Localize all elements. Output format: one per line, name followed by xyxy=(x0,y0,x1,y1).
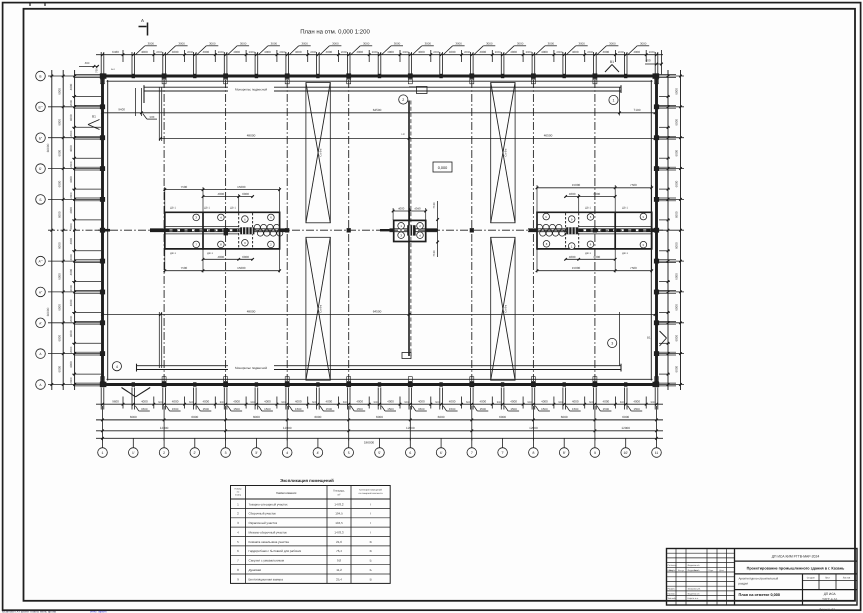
svg-text:4000: 4000 xyxy=(172,400,179,404)
svg-text:3000: 3000 xyxy=(640,42,647,46)
svg-text:Св-8м: Св-8м xyxy=(504,149,508,157)
svg-text:4000: 4000 xyxy=(449,400,456,404)
svg-text:А': А' xyxy=(39,321,42,325)
svg-text:6000: 6000 xyxy=(130,415,137,419)
svg-text:6000: 6000 xyxy=(57,365,61,372)
svg-text:по пожарной опасности: по пожарной опасности xyxy=(359,492,384,495)
svg-text:7500: 7500 xyxy=(181,266,188,270)
svg-text:500: 500 xyxy=(466,401,471,404)
svg-text:Наименование: Наименование xyxy=(276,491,297,495)
svg-text:4000: 4000 xyxy=(264,50,271,54)
svg-text:План на отметке 0,000: План на отметке 0,000 xyxy=(739,593,780,597)
svg-text:4000: 4000 xyxy=(69,361,73,368)
svg-text:7100: 7100 xyxy=(634,108,641,112)
svg-text:48000: 48000 xyxy=(247,310,256,314)
svg-text:Б'': Б'' xyxy=(39,136,43,140)
svg-text:Король е.а.: Король е.а. xyxy=(688,597,699,600)
svg-text:64500: 64500 xyxy=(373,108,382,112)
svg-text:Б''': Б''' xyxy=(39,105,43,109)
svg-text:2000: 2000 xyxy=(69,346,73,353)
svg-text:6000: 6000 xyxy=(499,415,506,419)
svg-text:12000: 12000 xyxy=(621,426,630,430)
svg-text:6000: 6000 xyxy=(57,149,61,156)
svg-text:4800: 4800 xyxy=(569,192,576,196)
svg-text:Бк1: Бк1 xyxy=(111,68,116,71)
svg-text:ДВ-1: ДВ-1 xyxy=(207,252,213,255)
svg-text:4800: 4800 xyxy=(217,192,224,196)
svg-text:ДВ-1: ДВ-1 xyxy=(170,207,176,210)
svg-text:ДВ-1: ДВ-1 xyxy=(585,252,591,255)
svg-text:4000: 4000 xyxy=(141,50,148,54)
svg-text:15000: 15000 xyxy=(572,183,581,187)
svg-text:186000: 186000 xyxy=(364,440,375,444)
svg-text:500: 500 xyxy=(528,401,533,404)
svg-text:Механо-сборочный участок: Механо-сборочный участок xyxy=(249,530,288,534)
svg-text:500: 500 xyxy=(374,401,379,404)
svg-text:4000: 4000 xyxy=(326,400,333,404)
svg-text:500: 500 xyxy=(435,401,440,404)
svg-text:1': 1' xyxy=(132,451,135,455)
svg-text:76,4: 76,4 xyxy=(336,549,342,553)
svg-text:3000: 3000 xyxy=(332,42,339,46)
svg-text:2000: 2000 xyxy=(187,51,193,54)
svg-text:3000: 3000 xyxy=(271,42,278,46)
svg-text:6: 6 xyxy=(409,451,411,455)
svg-text:4000: 4000 xyxy=(387,50,394,54)
svg-text:В: В xyxy=(39,75,41,79)
svg-text:1500: 1500 xyxy=(172,407,179,411)
svg-text:ДВ-1: ДВ-1 xyxy=(585,207,591,210)
svg-text:12000: 12000 xyxy=(283,426,292,430)
svg-text:6000: 6000 xyxy=(57,88,61,95)
svg-text:Стадия: Стадия xyxy=(807,576,816,579)
svg-text:раздел: раздел xyxy=(739,581,749,585)
svg-text:4040: 4040 xyxy=(414,206,421,210)
svg-text:Б': Б' xyxy=(39,167,42,171)
svg-text:2000: 2000 xyxy=(156,51,162,54)
svg-text:Св-8м: Св-8м xyxy=(319,305,323,313)
svg-text:30000: 30000 xyxy=(46,143,50,152)
svg-text:1500: 1500 xyxy=(480,407,487,411)
svg-text:500: 500 xyxy=(251,401,256,404)
svg-text:В: В xyxy=(370,577,372,581)
svg-text:6000: 6000 xyxy=(57,335,61,342)
svg-text:2000: 2000 xyxy=(556,51,562,54)
svg-text:1: 1 xyxy=(102,451,104,455)
svg-text:6000: 6000 xyxy=(242,192,249,196)
svg-text:1500: 1500 xyxy=(295,407,302,411)
svg-text:4000: 4000 xyxy=(356,400,363,404)
svg-text:4000: 4000 xyxy=(202,50,209,54)
svg-text:12000: 12000 xyxy=(160,426,169,430)
svg-text:4000: 4000 xyxy=(449,50,456,54)
svg-text:4000: 4000 xyxy=(418,400,425,404)
svg-text:2000: 2000 xyxy=(218,51,224,54)
svg-text:ДВ-1: ДВ-1 xyxy=(230,207,236,210)
svg-text:6000: 6000 xyxy=(674,242,678,249)
svg-text:1500: 1500 xyxy=(510,407,517,411)
svg-text:6000: 6000 xyxy=(594,255,601,259)
svg-text:4000: 4000 xyxy=(479,400,486,404)
svg-text:2000: 2000 xyxy=(433,51,439,54)
svg-text:500: 500 xyxy=(312,401,317,404)
svg-text:46500: 46500 xyxy=(544,134,553,138)
svg-text:7500: 7500 xyxy=(630,266,637,270)
svg-text:6000: 6000 xyxy=(674,335,678,342)
svg-text:Экспликация помещений: Экспликация помещений xyxy=(280,478,334,483)
svg-text:6000: 6000 xyxy=(674,365,678,372)
svg-text:2000: 2000 xyxy=(403,51,409,54)
svg-text:1500: 1500 xyxy=(572,407,579,411)
svg-text:3000: 3000 xyxy=(578,42,585,46)
svg-text:3000: 3000 xyxy=(240,42,247,46)
svg-text:1500: 1500 xyxy=(541,407,548,411)
svg-text:15000: 15000 xyxy=(237,266,246,270)
svg-text:Фадеева и/о: Фадеева и/о xyxy=(688,569,701,572)
svg-text:ДВ-1: ДВ-1 xyxy=(170,252,176,255)
svg-text:Кол.уч: Кол.уч xyxy=(678,569,684,572)
svg-text:Зав.каф.: Зав.каф. xyxy=(668,597,677,600)
svg-text:400: 400 xyxy=(645,59,650,63)
svg-text:11,2: 11,2 xyxy=(336,568,342,572)
svg-text:4000: 4000 xyxy=(572,50,579,54)
svg-text:4000: 4000 xyxy=(510,50,517,54)
svg-text:500: 500 xyxy=(220,401,225,404)
svg-text:Монорельс подвесной: Монорельс подвесной xyxy=(235,366,267,370)
svg-text:1: 1 xyxy=(613,99,615,103)
svg-text:Фадеева и/о: Фадеева и/о xyxy=(688,564,701,567)
svg-text:1478,2: 1478,2 xyxy=(334,502,344,506)
svg-text:1500: 1500 xyxy=(633,407,640,411)
svg-text:2000: 2000 xyxy=(587,51,593,54)
svg-text:В: В xyxy=(370,540,372,544)
svg-text:1478,3: 1478,3 xyxy=(334,530,344,534)
svg-text:Площадь,: Площадь, xyxy=(333,490,345,493)
svg-text:10': 10' xyxy=(623,451,628,455)
svg-text:ДВ-1: ДВ-1 xyxy=(622,252,628,255)
svg-text:6000: 6000 xyxy=(674,211,678,218)
svg-text:4000: 4000 xyxy=(510,400,517,404)
svg-text:750: 750 xyxy=(95,68,99,73)
svg-text:1500: 1500 xyxy=(418,407,425,411)
svg-text:7': 7' xyxy=(501,451,504,455)
svg-text:плану: плану xyxy=(235,494,242,497)
svg-text:2000: 2000 xyxy=(69,285,73,292)
svg-text:4800: 4800 xyxy=(217,255,224,259)
svg-text:7740: 7740 xyxy=(432,202,436,209)
svg-text:ДВ-1: ДВ-1 xyxy=(622,207,628,210)
svg-text:6000: 6000 xyxy=(674,304,678,311)
svg-text:4000: 4000 xyxy=(541,400,548,404)
svg-text:6000: 6000 xyxy=(674,180,678,187)
svg-text:4000: 4000 xyxy=(69,207,73,214)
svg-text:6000: 6000 xyxy=(191,415,198,419)
svg-text:3000: 3000 xyxy=(394,42,401,46)
svg-text:4000: 4000 xyxy=(418,50,425,54)
svg-text:2': 2' xyxy=(194,451,197,455)
svg-text:4000: 4000 xyxy=(633,400,640,404)
svg-text:3000: 3000 xyxy=(301,42,308,46)
svg-text:500: 500 xyxy=(404,401,409,404)
svg-text:9,8: 9,8 xyxy=(337,559,342,563)
svg-text:Подп.: Подп. xyxy=(708,569,714,572)
svg-text:Захарова у.В.: Захарова у.В. xyxy=(688,588,702,591)
svg-text:4000: 4000 xyxy=(572,400,579,404)
svg-text:4000: 4000 xyxy=(233,50,240,54)
svg-text:2ДГТ-6-16: 2ДГТ-6-16 xyxy=(822,598,837,602)
svg-text:Монорельс подвесной: Монорельс подвесной xyxy=(235,88,267,92)
svg-text:15000: 15000 xyxy=(237,185,246,189)
svg-text:ДВ-1: ДВ-1 xyxy=(204,207,210,210)
svg-text:12000: 12000 xyxy=(406,426,415,430)
svg-text:6000: 6000 xyxy=(376,415,383,419)
svg-text:400: 400 xyxy=(85,61,90,65)
svg-text:25,4: 25,4 xyxy=(336,577,342,581)
svg-text:4000: 4000 xyxy=(264,400,271,404)
svg-text:4000: 4000 xyxy=(398,206,405,210)
svg-text:4000: 4000 xyxy=(479,50,486,54)
svg-text:3000: 3000 xyxy=(209,42,216,46)
svg-text:6000: 6000 xyxy=(438,415,445,419)
svg-text:I: I xyxy=(370,512,371,516)
svg-text:4: 4 xyxy=(286,451,288,455)
svg-text:500: 500 xyxy=(558,401,563,404)
svg-text:140: 140 xyxy=(401,133,406,136)
svg-text:500: 500 xyxy=(150,115,155,119)
svg-text:6000: 6000 xyxy=(57,273,61,280)
svg-text:500: 500 xyxy=(189,401,194,404)
svg-text:6000: 6000 xyxy=(594,192,601,196)
svg-text:1500: 1500 xyxy=(326,407,333,411)
svg-text:5: 5 xyxy=(348,451,350,455)
svg-text:В1: В1 xyxy=(610,60,614,64)
svg-text:0,000: 0,000 xyxy=(438,166,448,170)
svg-text:2000: 2000 xyxy=(618,51,624,54)
svg-text:7740: 7740 xyxy=(432,250,436,257)
svg-text:6000: 6000 xyxy=(674,149,678,156)
svg-text:6000: 6000 xyxy=(57,304,61,311)
svg-text:4000: 4000 xyxy=(69,176,73,183)
svg-text:Провер.: Провер. xyxy=(668,592,676,595)
svg-text:6000: 6000 xyxy=(57,119,61,126)
svg-text:1500: 1500 xyxy=(449,407,456,411)
svg-text:500: 500 xyxy=(589,401,594,404)
svg-text:А''': А''' xyxy=(39,260,43,264)
svg-text:9400: 9400 xyxy=(118,107,125,111)
svg-text:2000: 2000 xyxy=(69,99,73,106)
svg-text:2: 2 xyxy=(402,98,404,102)
svg-text:А'': А'' xyxy=(39,291,43,295)
svg-text:2000: 2000 xyxy=(69,130,73,137)
svg-text:4000: 4000 xyxy=(295,400,302,404)
svg-text:2000: 2000 xyxy=(279,51,285,54)
svg-text:Консульт.: Консульт. xyxy=(668,569,677,572)
svg-text:Вентиляционная камера: Вентиляционная камера xyxy=(249,577,284,581)
svg-text:7500: 7500 xyxy=(630,183,637,187)
svg-text:Номер: Номер xyxy=(235,488,243,491)
svg-text:4800: 4800 xyxy=(569,255,576,259)
svg-text:2000: 2000 xyxy=(69,161,73,168)
svg-text:Проектирование промышленного з: Проектирование промышленного здания в г.… xyxy=(747,566,845,570)
svg-text:Токарно-слесарный участок: Токарно-слесарный участок xyxy=(249,502,289,506)
svg-text:9: 9 xyxy=(594,451,596,455)
svg-text:ДП ИСА: ДП ИСА xyxy=(824,592,837,596)
svg-text:4000: 4000 xyxy=(603,50,610,54)
svg-text:План на отм. 0,000 1:200: План на отм. 0,000 1:200 xyxy=(300,29,370,36)
svg-text:4000: 4000 xyxy=(172,50,179,54)
svg-text:Комната начальника участка: Комната начальника участка xyxy=(249,540,290,544)
svg-text:48000: 48000 xyxy=(247,134,256,138)
svg-text:4': 4' xyxy=(317,451,320,455)
svg-text:1500: 1500 xyxy=(387,407,394,411)
svg-text:4: 4 xyxy=(116,365,118,369)
svg-text:2000: 2000 xyxy=(69,254,73,261)
svg-text:1500: 1500 xyxy=(603,407,610,411)
svg-text:2000: 2000 xyxy=(69,192,73,199)
svg-text:В1: В1 xyxy=(647,336,651,340)
svg-text:4000: 4000 xyxy=(233,400,240,404)
svg-text:3': 3' xyxy=(255,451,258,455)
svg-text:3000: 3000 xyxy=(363,42,370,46)
svg-text:500: 500 xyxy=(651,401,656,404)
svg-text:500: 500 xyxy=(281,401,286,404)
svg-text:I: I xyxy=(370,502,371,506)
svg-text:ДП ИСА КИМ РГТВ-МАР-2024: ДП ИСА КИМ РГТВ-МАР-2024 xyxy=(772,555,820,559)
svg-text:Св-8м: Св-8м xyxy=(319,149,323,157)
svg-text:4000: 4000 xyxy=(295,50,302,54)
svg-text:4000: 4000 xyxy=(69,330,73,337)
svg-text:Б: Б xyxy=(370,559,372,563)
svg-text:2000: 2000 xyxy=(69,377,73,384)
svg-text:6000: 6000 xyxy=(57,180,61,187)
svg-text:В: В xyxy=(370,549,372,553)
svg-text:Санузел с умывальником: Санузел с умывальником xyxy=(249,559,285,563)
svg-text:30000: 30000 xyxy=(46,307,50,316)
svg-text:6000: 6000 xyxy=(674,88,678,95)
svg-text:1500: 1500 xyxy=(233,407,240,411)
svg-text:4000: 4000 xyxy=(202,400,209,404)
svg-text:3000: 3000 xyxy=(517,42,524,46)
svg-text:3000: 3000 xyxy=(148,42,155,46)
svg-text:м²: м² xyxy=(338,494,341,497)
svg-text:4000: 4000 xyxy=(69,145,73,152)
svg-text:194,5: 194,5 xyxy=(335,521,343,525)
svg-text:А: А xyxy=(141,18,144,23)
svg-text:I: I xyxy=(370,521,371,525)
svg-text:4000: 4000 xyxy=(69,238,73,245)
svg-text:1500: 1500 xyxy=(264,407,271,411)
svg-text:1500: 1500 xyxy=(203,407,210,411)
svg-text:Формат А1: Формат А1 xyxy=(819,607,835,611)
svg-text:3: 3 xyxy=(225,451,227,455)
svg-text:11: 11 xyxy=(655,451,659,455)
svg-text:15000: 15000 xyxy=(572,266,581,270)
svg-text:6000: 6000 xyxy=(242,255,249,259)
svg-text:3000: 3000 xyxy=(455,42,462,46)
svg-text:2000: 2000 xyxy=(464,51,470,54)
svg-text:4000: 4000 xyxy=(69,114,73,121)
svg-text:500: 500 xyxy=(620,401,625,404)
svg-text:Архитектурно-строительный: Архитектурно-строительный xyxy=(739,577,779,581)
svg-text:Согласов.: Согласов. xyxy=(668,564,678,567)
svg-text:2000: 2000 xyxy=(495,51,501,54)
svg-text:8': 8' xyxy=(563,451,566,455)
svg-text:Листов: Листов xyxy=(843,576,851,579)
svg-text:4000: 4000 xyxy=(69,83,73,90)
svg-text:4000: 4000 xyxy=(387,400,394,404)
svg-text:1500: 1500 xyxy=(356,407,363,411)
svg-text:2000: 2000 xyxy=(526,51,532,54)
svg-text:4000: 4000 xyxy=(356,50,363,54)
svg-text:3000: 3000 xyxy=(486,42,493,46)
svg-text:4000: 4000 xyxy=(326,50,333,54)
svg-text:3000: 3000 xyxy=(425,42,432,46)
svg-text:В1: В1 xyxy=(92,115,96,119)
svg-text:1500: 1500 xyxy=(141,407,148,411)
svg-text:Св-8м: Св-8м xyxy=(504,305,508,313)
svg-text:6000: 6000 xyxy=(314,415,321,419)
svg-text:3000: 3000 xyxy=(178,42,185,46)
svg-text:6480: 6480 xyxy=(112,50,119,54)
svg-text:2000: 2000 xyxy=(69,223,73,230)
svg-text:500: 500 xyxy=(497,401,502,404)
svg-text:6000: 6000 xyxy=(57,242,61,249)
svg-text:4000: 4000 xyxy=(69,299,73,306)
svg-text:I: I xyxy=(370,530,371,534)
svg-text:7500: 7500 xyxy=(181,185,188,189)
svg-text:4000: 4000 xyxy=(633,50,640,54)
svg-text:6000: 6000 xyxy=(674,119,678,126)
svg-text:6000: 6000 xyxy=(57,211,61,218)
svg-text:2000: 2000 xyxy=(310,51,316,54)
svg-text:Фадеева и/о: Фадеева и/о xyxy=(688,592,701,595)
svg-text:venv/. diplom: venv/. diplom xyxy=(90,609,107,613)
svg-text:64500: 64500 xyxy=(373,310,382,314)
svg-text:localhost/ТХ-Проект планы июнь: localhost/ТХ-Проект планы июнь архив xyxy=(2,609,56,613)
svg-text:21,6: 21,6 xyxy=(336,540,342,544)
svg-text:500: 500 xyxy=(158,401,163,404)
svg-text:6000: 6000 xyxy=(674,273,678,280)
svg-text:500: 500 xyxy=(343,401,348,404)
svg-text:Сборочный участок: Сборочный участок xyxy=(249,512,277,516)
svg-text:6': 6' xyxy=(440,451,443,455)
svg-text:2000: 2000 xyxy=(341,51,347,54)
svg-text:Окрасочный участок: Окрасочный участок xyxy=(249,521,278,525)
svg-text:Б: Б xyxy=(39,198,41,202)
svg-text:12000: 12000 xyxy=(529,426,538,430)
svg-text:Категория помещений: Категория помещений xyxy=(359,489,382,492)
svg-text:Б: Б xyxy=(370,568,372,572)
svg-text:4000: 4000 xyxy=(141,400,148,404)
svg-text:4000: 4000 xyxy=(541,50,548,54)
svg-text:2: 2 xyxy=(163,451,165,455)
svg-text:3: 3 xyxy=(611,342,613,346)
svg-text:6000: 6000 xyxy=(561,415,568,419)
svg-text:6000: 6000 xyxy=(253,415,260,419)
svg-text:4000: 4000 xyxy=(603,400,610,404)
svg-text:2000: 2000 xyxy=(649,51,655,54)
svg-text:Гардеробная с бытовкой для раб: Гардеробная с бытовкой для рабочих xyxy=(249,549,302,553)
svg-text:3000: 3000 xyxy=(548,42,555,46)
svg-text:4000: 4000 xyxy=(69,268,73,275)
svg-text:8: 8 xyxy=(532,451,534,455)
svg-text:7: 7 xyxy=(471,451,473,455)
svg-text:3000: 3000 xyxy=(609,42,616,46)
svg-text:2000: 2000 xyxy=(69,315,73,322)
svg-text:9600: 9600 xyxy=(112,400,119,404)
svg-text:6000: 6000 xyxy=(622,415,629,419)
svg-text:2000: 2000 xyxy=(249,51,255,54)
